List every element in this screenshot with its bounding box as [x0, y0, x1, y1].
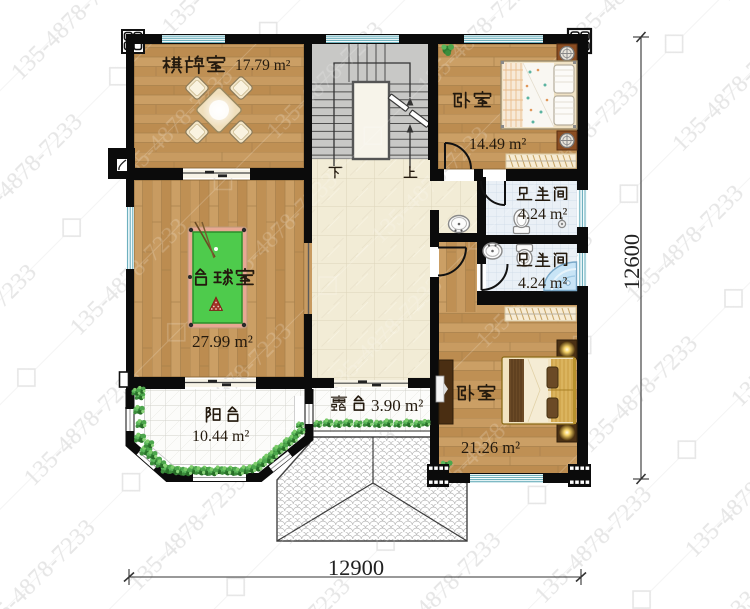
svg-text:4.24 m²: 4.24 m²	[518, 275, 567, 292]
svg-text:12900: 12900	[328, 555, 384, 580]
svg-text:21.26 m²: 21.26 m²	[461, 438, 520, 457]
svg-text:14.49 m²: 14.49 m²	[469, 136, 526, 153]
svg-text:4.24 m²: 4.24 m²	[518, 206, 567, 223]
svg-text:3.90 m²: 3.90 m²	[371, 396, 423, 415]
svg-text:27.99 m²: 27.99 m²	[192, 332, 253, 351]
svg-text:10.44 m²: 10.44 m²	[192, 428, 249, 445]
svg-text:17.79 m²: 17.79 m²	[235, 57, 291, 74]
svg-text:12600: 12600	[619, 234, 644, 290]
